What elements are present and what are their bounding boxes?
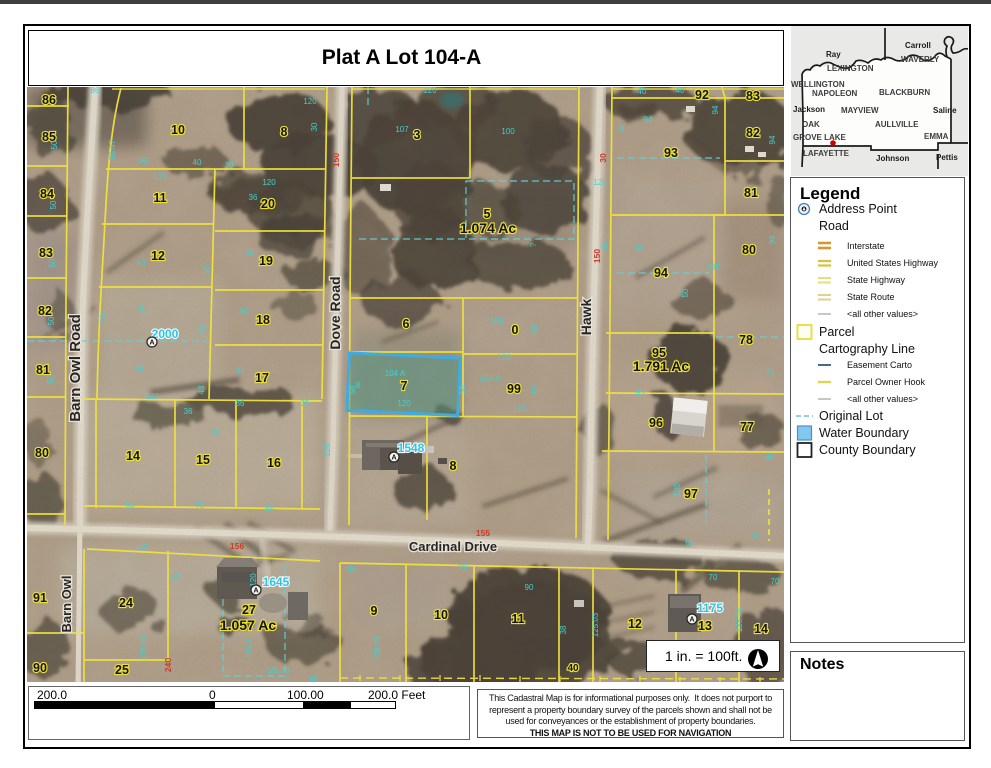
svg-text:125.03: 125.03 [591,612,600,637]
svg-text:19: 19 [259,254,273,268]
svg-text:46: 46 [348,565,357,574]
svg-text:40: 40 [676,87,685,95]
svg-text:120: 120 [153,173,167,182]
svg-text:40: 40 [310,675,319,682]
svg-text:A: A [689,617,694,624]
svg-text:1.074 Ac: 1.074 Ac [460,220,517,236]
svg-text:94: 94 [711,105,720,114]
svg-text:Johnson: Johnson [876,154,909,163]
svg-text:124.94: 124.94 [139,635,148,660]
svg-text:11: 11 [511,612,524,626]
svg-text:State Route: State Route [847,292,895,302]
svg-text:50: 50 [48,258,57,267]
svg-text:Dove Road: Dove Road [327,276,343,349]
svg-text:50: 50 [202,265,211,274]
svg-text:40: 40 [193,158,202,167]
svg-text:240: 240 [163,658,173,672]
svg-text:90: 90 [33,661,47,675]
svg-text:82: 82 [746,126,760,140]
svg-text:EMMA: EMMA [924,132,949,141]
svg-text:120: 120 [423,87,437,95]
svg-text:LAFAYETTE: LAFAYETTE [803,149,850,158]
svg-text:Easement Carto: Easement Carto [847,360,912,370]
svg-text:Ray: Ray [826,50,841,59]
svg-text:93: 93 [664,146,678,160]
svg-text:78: 78 [739,333,753,347]
svg-text:14: 14 [126,449,140,463]
svg-text:50: 50 [47,316,56,325]
svg-text:Jackson: Jackson [793,105,825,114]
svg-text:103-A: 103-A [479,374,501,383]
svg-text:13: 13 [698,619,712,633]
svg-text:120: 120 [145,392,159,401]
svg-text:155: 155 [476,528,490,538]
svg-text:Barn Owl: Barn Owl [59,575,74,632]
svg-text:<all other values>: <all other values> [847,394,918,404]
svg-text:156: 156 [230,541,244,551]
svg-text:0: 0 [512,323,519,337]
svg-text:107: 107 [395,125,409,134]
svg-text:9: 9 [371,604,378,618]
svg-text:Barn Owl Road: Barn Owl Road [67,314,84,422]
svg-text:<all other values>: <all other values> [847,309,918,319]
svg-text:150: 150 [331,153,341,167]
svg-text:Cartography Line: Cartography Line [819,342,915,356]
svg-text:120: 120 [513,405,527,414]
svg-text:70: 70 [196,501,205,510]
svg-text:94: 94 [644,115,653,124]
svg-text:99: 99 [507,382,521,396]
svg-text:90: 90 [139,156,148,165]
svg-text:94: 94 [654,266,668,280]
svg-text:Original Lot: Original Lot [819,409,883,423]
svg-text:58: 58 [348,385,357,394]
svg-text:AULLVILLE: AULLVILLE [875,120,919,129]
svg-text:38: 38 [559,625,568,634]
svg-text:50: 50 [600,240,609,249]
svg-text:104 A: 104 A [385,369,406,378]
svg-text:?: ? [529,242,538,247]
svg-text:OAK: OAK [802,120,820,129]
svg-text:45: 45 [139,543,148,552]
svg-text:120: 120 [593,178,607,187]
svg-text:A: A [253,588,258,595]
svg-text:BLACKBURN: BLACKBURN [879,88,930,97]
svg-text:90: 90 [137,259,146,268]
svg-text:50: 50 [99,313,108,322]
svg-text:725.36: 725.36 [265,666,290,675]
svg-text:120: 120 [262,178,276,187]
svg-text:18: 18 [256,313,270,327]
svg-text:6: 6 [403,317,410,331]
svg-text:91: 91 [33,591,47,605]
svg-text:Parcel: Parcel [819,325,854,339]
svg-text:50: 50 [199,325,208,334]
svg-text:1.057 Ac: 1.057 Ac [220,617,277,633]
svg-text:20: 20 [261,197,275,211]
svg-text:94: 94 [768,235,777,244]
svg-text:25: 25 [115,663,129,677]
svg-text:65: 65 [126,500,135,509]
svg-text:10: 10 [171,123,185,137]
svg-text:96: 96 [649,416,663,430]
svg-text:NAPOLEON: NAPOLEON [812,89,858,98]
svg-text:94: 94 [768,135,777,144]
svg-text:40: 40 [567,663,579,674]
svg-text:GROVE LAKE: GROVE LAKE [793,133,847,142]
svg-text:State Highway: State Highway [847,275,906,285]
svg-text:27: 27 [242,603,256,617]
svg-text:80: 80 [35,446,49,460]
svg-text:A: A [149,340,154,347]
svg-text:35: 35 [245,248,254,257]
svg-text:Road: Road [819,219,849,233]
svg-text:84: 84 [40,187,54,201]
svg-text:86: 86 [42,93,56,107]
svg-text:14: 14 [754,622,768,636]
svg-text:65: 65 [266,505,275,514]
svg-text:70: 70 [752,533,761,542]
svg-text:36: 36 [184,407,193,416]
svg-text:45: 45 [138,304,147,313]
svg-text:79: 79 [766,368,775,377]
svg-text:United States Highway: United States Highway [847,258,939,268]
svg-text:50: 50 [681,288,690,297]
svg-text:Saline: Saline [933,106,957,115]
svg-text:133.74: 133.74 [735,607,744,632]
svg-text:86: 86 [91,87,100,95]
svg-text:92: 92 [695,88,709,102]
svg-text:55: 55 [211,429,220,438]
svg-text:MAYVIEW: MAYVIEW [841,106,879,115]
svg-text:100: 100 [673,483,682,497]
svg-text:1.791 Ac: 1.791 Ac [633,358,690,374]
svg-text:LEXINGTON: LEXINGTON [827,64,874,73]
svg-text:24: 24 [119,596,133,610]
svg-text:81: 81 [744,186,758,200]
svg-text:124.03: 124.03 [373,635,382,660]
svg-text:90: 90 [459,563,468,572]
svg-text:100: 100 [501,127,515,136]
svg-text:50: 50 [49,200,58,209]
svg-text:40: 40 [638,87,647,96]
svg-text:Cardinal Drive: Cardinal Drive [409,539,497,554]
svg-text:50: 50 [46,374,55,383]
svg-text:95: 95 [636,245,645,254]
svg-text:12: 12 [151,249,165,263]
svg-text:45: 45 [171,573,180,582]
svg-text:103: 103 [490,317,504,326]
svg-text:77: 77 [740,420,754,434]
svg-text:15: 15 [196,453,210,467]
svg-text:11: 11 [153,191,166,205]
svg-text:A: A [391,455,396,462]
svg-text:WAVERLY: WAVERLY [901,55,940,64]
svg-text:County Boundary: County Boundary [819,443,916,457]
svg-text:1548: 1548 [398,441,425,455]
svg-text:50.47: 50.47 [108,139,117,160]
svg-text:1175: 1175 [697,601,723,615]
svg-text:30: 30 [310,122,319,131]
svg-text:70: 70 [771,577,780,586]
svg-text:36: 36 [236,399,245,408]
svg-text:12: 12 [628,617,642,631]
svg-text:55: 55 [531,384,540,393]
svg-text:16: 16 [267,456,281,470]
svg-text:Carroll: Carroll [905,41,931,50]
svg-text:Parcel Owner Hook: Parcel Owner Hook [847,377,926,387]
svg-text:34: 34 [239,307,248,316]
svg-text:90: 90 [525,583,534,592]
svg-text:46: 46 [766,453,775,462]
svg-text:1645: 1645 [263,575,290,589]
svg-text:WELLINGTON: WELLINGTON [791,80,845,89]
svg-text:Hawk: Hawk [578,299,594,336]
svg-text:124.1: 124.1 [245,637,254,658]
svg-text:95: 95 [636,388,645,397]
svg-text:36: 36 [249,193,258,202]
svg-text:Address Point: Address Point [819,202,897,216]
svg-text:49: 49 [136,364,145,373]
svg-text:120: 120 [303,97,317,106]
svg-text:8: 8 [450,459,457,473]
svg-text:82: 82 [38,304,52,318]
svg-text:97: 97 [684,487,698,501]
svg-text:Water Boundary: Water Boundary [819,426,910,440]
svg-text:80: 80 [742,243,756,257]
svg-text:150: 150 [592,249,602,263]
svg-text:30: 30 [598,153,608,163]
svg-text:83: 83 [746,89,760,103]
svg-text:120: 120 [497,353,511,362]
svg-text:120: 120 [397,399,411,408]
svg-text:17: 17 [255,371,269,385]
svg-text:35: 35 [301,399,310,408]
svg-text:3: 3 [414,128,421,142]
svg-text:8: 8 [281,125,288,139]
svg-text:Pettis: Pettis [936,153,958,162]
svg-text:Interstate: Interstate [847,241,885,251]
svg-text:10: 10 [434,608,448,622]
svg-text:7: 7 [401,379,408,393]
svg-text:30: 30 [225,161,234,170]
svg-text:65: 65 [686,538,695,547]
svg-text:50: 50 [50,140,59,149]
svg-text:120: 120 [323,443,332,457]
svg-text:83: 83 [39,246,53,260]
svg-text:70: 70 [709,573,718,582]
svg-text:105: 105 [706,263,720,272]
svg-text:43: 43 [197,385,206,394]
svg-text:5: 5 [484,207,491,221]
svg-text:33: 33 [236,366,245,375]
svg-text:58: 58 [458,385,467,394]
svg-text:8: 8 [620,124,625,133]
svg-text:58: 58 [531,325,540,334]
